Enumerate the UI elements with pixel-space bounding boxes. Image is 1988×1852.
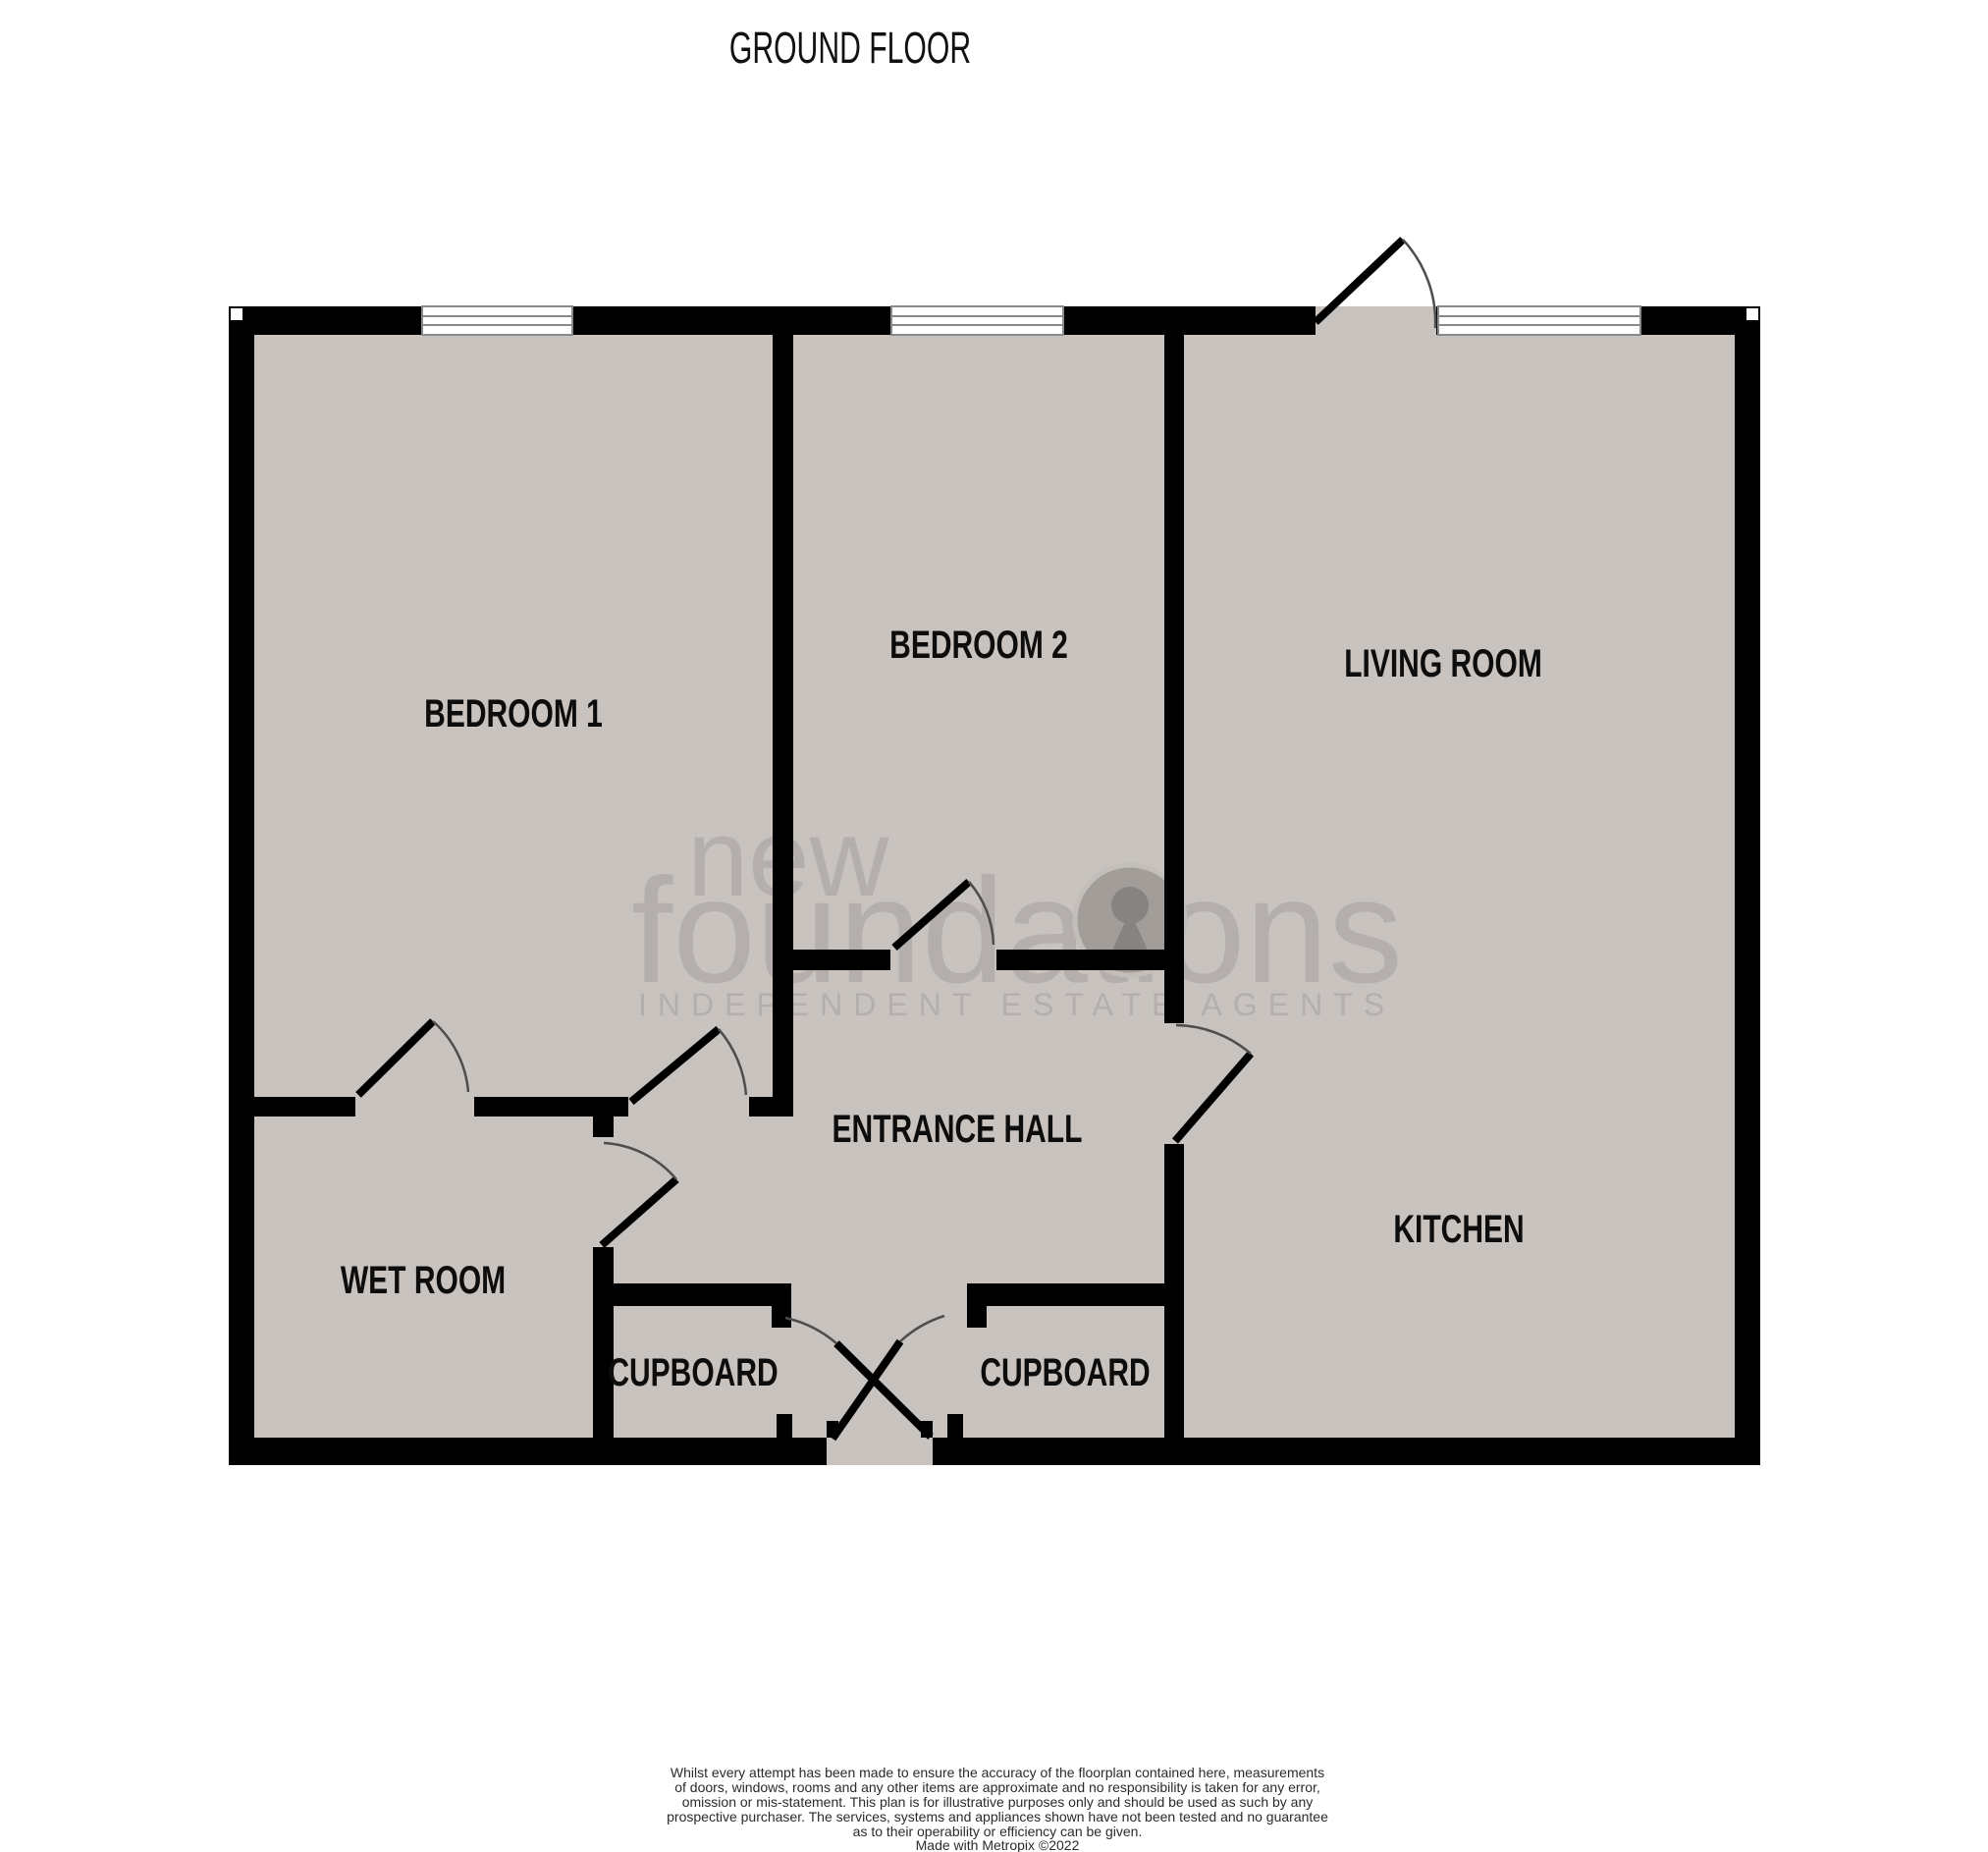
page-title: GROUND FLOOR	[729, 24, 971, 74]
wall-bed2-bottom-2	[996, 950, 1164, 970]
room-label-wet-room: WET ROOM	[341, 1259, 506, 1302]
wall-hall-kitchen-upper	[1164, 335, 1184, 1023]
wall-cupboard-left-stub	[772, 1306, 791, 1328]
watermark-tagline: INDEPENDENT ESTATE AGENTS	[638, 987, 1395, 1022]
metropix-credit: Made with Metropix ©2022	[916, 1837, 1080, 1852]
disclaimer-line-1: Whilst every attempt has been made to en…	[671, 1765, 1324, 1780]
wall-cupboard-right-top	[967, 1283, 1164, 1306]
room-label-bedroom-1: BEDROOM 1	[424, 692, 603, 735]
wall-bottom-1	[229, 1438, 827, 1465]
wall-right	[1735, 306, 1760, 1465]
floorplan-canvas: GROUND FLOOR new foundations INDEPENDENT…	[0, 0, 1988, 1852]
corner-notch-left	[231, 308, 242, 320]
wall-bottom-2	[933, 1438, 1760, 1465]
wall-wetroom-right-stub	[593, 1117, 614, 1137]
disclaimer-line-2: of doors, windows, rooms and any other i…	[674, 1779, 1320, 1795]
wall-cupboard-right-stub	[967, 1306, 987, 1328]
wall-cupboard-left-top	[614, 1283, 791, 1306]
room-label-cupboard-left: CUPBOARD	[608, 1351, 778, 1394]
wall-bed1-bottom-2	[474, 1097, 628, 1117]
jamb-cupboard-right	[947, 1414, 963, 1438]
wall-top-2	[572, 306, 891, 335]
room-label-kitchen: KITCHEN	[1393, 1208, 1524, 1251]
wall-top-1	[229, 306, 422, 335]
wall-hall-kitchen-lower	[1164, 1144, 1184, 1438]
wall-left	[229, 306, 254, 1465]
window-bedroom-1	[422, 306, 572, 335]
room-label-bedroom-2: BEDROOM 2	[889, 624, 1068, 667]
window-living-room	[1438, 306, 1640, 335]
room-label-entrance-hall: ENTRANCE HALL	[833, 1108, 1083, 1151]
wall-wetroom-right	[593, 1247, 614, 1438]
wall-bed1-bed2	[773, 335, 793, 1097]
wall-bed1-foot	[749, 1097, 793, 1117]
disclaimer-line-3: omission or mis-statement. This plan is …	[682, 1794, 1314, 1810]
disclaimer: Whilst every attempt has been made to en…	[667, 1765, 1328, 1852]
window-bedroom-2	[891, 306, 1063, 335]
wall-top-3	[1063, 306, 1316, 335]
room-label-cupboard-right: CUPBOARD	[980, 1351, 1150, 1394]
room-label-living-room: LIVING ROOM	[1344, 642, 1542, 685]
jamb-cupboard-left	[777, 1414, 792, 1438]
wall-bed1-bottom-1	[229, 1097, 355, 1117]
wall-bed2-bottom-1	[793, 950, 890, 970]
floorplan-page: GROUND FLOOR new foundations INDEPENDENT…	[0, 0, 1988, 1852]
disclaimer-line-4: prospective purchaser. The services, sys…	[667, 1809, 1328, 1825]
corner-notch-right	[1746, 308, 1758, 320]
